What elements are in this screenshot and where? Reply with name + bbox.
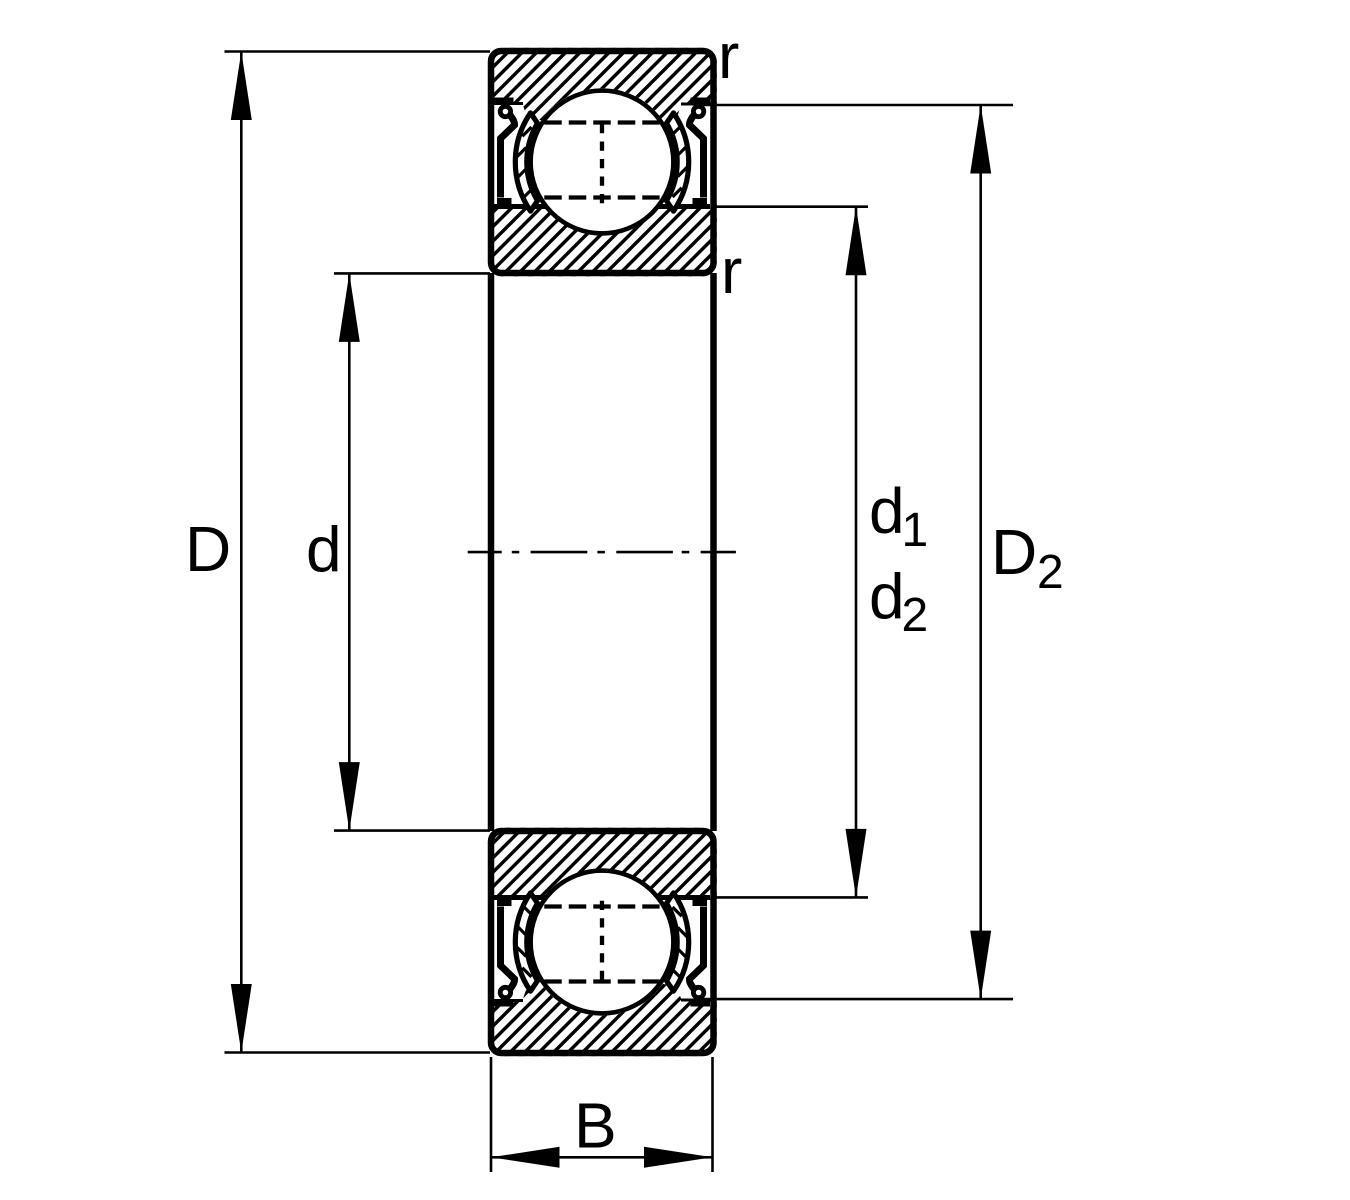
svg-text:2: 2	[902, 589, 929, 642]
svg-text:r: r	[718, 20, 739, 92]
svg-text:B: B	[574, 1090, 617, 1162]
svg-text:1: 1	[902, 504, 929, 557]
svg-text:r: r	[721, 235, 742, 307]
svg-text:D: D	[991, 516, 1037, 588]
svg-text:2: 2	[1037, 546, 1064, 599]
svg-text:d: d	[869, 560, 905, 632]
svg-text:d: d	[869, 475, 905, 547]
svg-text:D: D	[185, 513, 231, 585]
svg-text:d: d	[306, 514, 342, 586]
